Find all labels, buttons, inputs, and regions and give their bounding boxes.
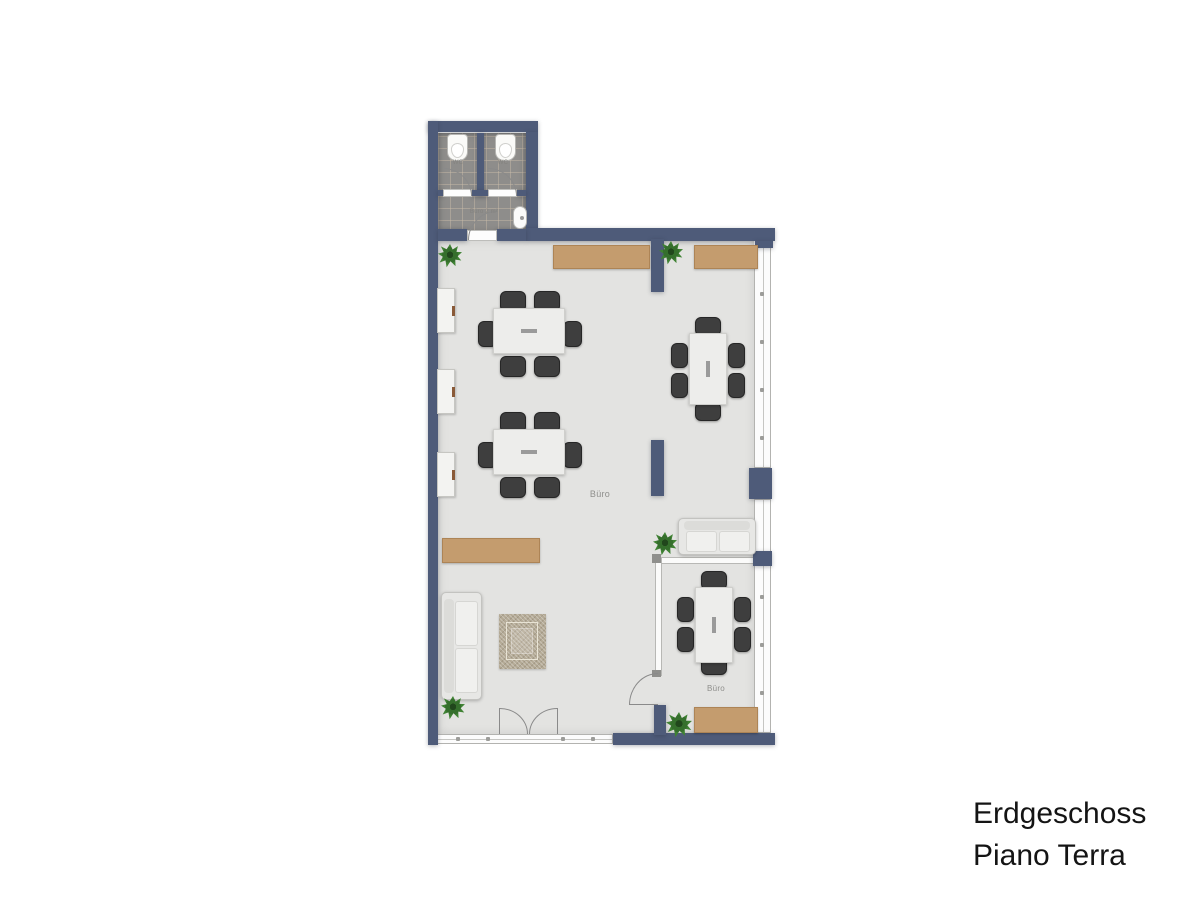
sofa-left [441,592,482,700]
wall-wc-divider [477,133,484,195]
sofa-cushion [455,648,478,693]
wall-stall [517,190,526,196]
window-tick [760,691,764,695]
office-chair [534,356,560,377]
wall-stub-small-office [654,705,666,735]
wall-stub-mid [651,440,664,496]
office-chair [534,477,560,498]
window-bottom [437,734,613,744]
sofa-cushion [719,531,750,552]
office-chair [500,356,526,377]
wall-wc-top [428,121,538,132]
window-tick [760,595,764,599]
desk-table [689,333,727,405]
sofa-small-office [678,518,756,555]
office-chair [734,627,751,652]
room-label-main-office: Büro [570,489,630,499]
wall-left [428,121,438,745]
office-chair [671,373,688,398]
room-label-small-office: Büro [686,684,746,693]
window-tick [760,643,764,647]
sofa-cushion [455,601,478,646]
office-chair [563,442,582,468]
caption-line-italian: Piano Terra [973,835,1146,877]
desk-group [671,317,745,421]
sofa-back [444,599,454,693]
window-tick [760,292,764,296]
door-leaf [557,708,558,734]
cabinet [437,452,455,497]
window-tick [760,388,764,392]
cabinet [437,369,455,414]
wall-wc-right [526,132,538,229]
plan-caption: Erdgeschoss Piano Terra [973,793,1146,877]
room-label-wc-right: WC [488,160,518,166]
sideboard [553,245,650,269]
floorplan-canvas: Büro Büro WC WC Büro 2 m² Erdgeschoss Pi… [0,0,1200,900]
desk-table [695,587,733,663]
desk-group [478,291,582,377]
sideboard [694,245,758,269]
office-chair [500,477,526,498]
room-label-wc-left: WC [443,160,473,166]
office-chair [563,321,582,347]
caption-line-german: Erdgeschoss [973,793,1146,835]
partition-post [652,554,661,563]
wall-vestibule-left [438,229,467,241]
sideboard [442,538,540,563]
desk-table [493,308,565,354]
office-chair [677,627,694,652]
window-tick [591,737,595,741]
door-leaf [499,708,500,734]
window-right-upper [754,247,771,468]
wall-pier-glass [753,551,772,566]
sink-icon [513,206,527,229]
window-tick [561,737,565,741]
glass-partition-left [655,557,662,676]
rug [499,614,546,669]
wall-stall [472,190,488,196]
wall-pier-right [749,468,772,499]
door-leaf [629,704,658,705]
sofa-back [684,521,750,530]
toilet-icon [495,134,516,161]
desk-table [493,429,565,475]
glass-partition-top [655,557,756,564]
desk-group [677,571,751,675]
office-chair [728,343,745,368]
wall-vestibule-right [497,229,526,241]
cabinet [437,288,455,333]
office-chair [677,597,694,622]
window-tick [760,340,764,344]
wall-bottom [613,733,775,745]
sofa-cushion [686,531,717,552]
sideboard [694,707,758,733]
window-tick [760,436,764,440]
office-chair [671,343,688,368]
toilet-icon [447,134,468,161]
window-tick [456,737,460,741]
window-right-lower [754,499,771,733]
desk-group [478,412,582,498]
room-label-vestibule: Büro 2 m² [459,209,509,215]
window-tick [486,737,490,741]
office-chair [728,373,745,398]
office-chair [734,597,751,622]
wall-stub-top [651,239,664,292]
